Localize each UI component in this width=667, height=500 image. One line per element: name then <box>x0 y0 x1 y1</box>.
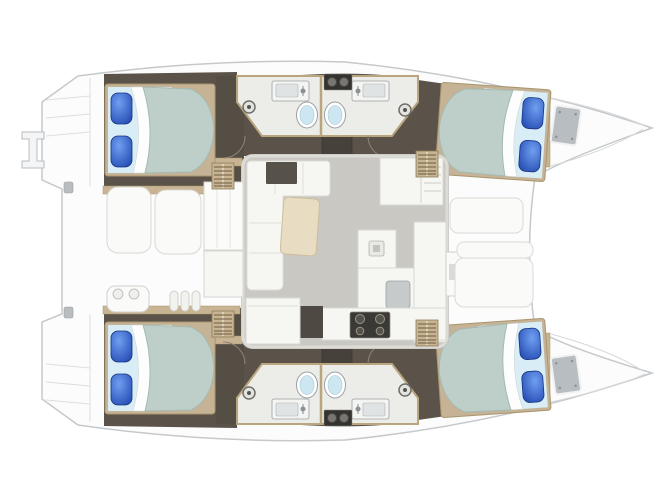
companionway-steps-port-aft <box>212 163 234 189</box>
sofa-console <box>266 162 297 184</box>
cabin-bed-stbd-fwd <box>435 318 551 417</box>
galley-dark-unit <box>300 306 323 338</box>
foredeck-lounge-seat <box>455 258 533 307</box>
forepeak-hatch-icon <box>550 354 581 394</box>
forepeak-hatch-icon <box>550 105 581 145</box>
cleat-icon <box>64 182 73 193</box>
cabin-bed-stbd-aft <box>105 322 215 414</box>
helm-seat <box>107 286 149 312</box>
saloon-table <box>280 197 320 256</box>
cockpit-cushion <box>107 187 151 253</box>
companionway-steps-port-fwd <box>416 151 438 177</box>
foredeck <box>450 198 533 307</box>
saloon-cabinet <box>246 298 300 344</box>
cabin-bed-port-fwd <box>435 82 551 181</box>
galley-sink <box>386 281 410 308</box>
foredeck-lounge-back <box>457 242 533 258</box>
companionway-steps-stbd-fwd <box>416 320 438 346</box>
saloon <box>242 155 449 349</box>
boat-floor-plan <box>0 0 667 500</box>
cockpit-steps <box>170 291 200 311</box>
cleat-icon <box>64 307 73 318</box>
cockpit-cushion <box>155 190 201 254</box>
foredeck-sunpad <box>450 198 523 233</box>
catamaran-deck-plan <box>0 0 667 500</box>
cabin-bed-port-aft <box>105 84 215 176</box>
saloon-aft-wall <box>204 182 243 297</box>
swim-ladder <box>22 132 44 168</box>
companionway-steps-stbd-aft <box>212 311 234 337</box>
stove-icon <box>350 312 390 338</box>
